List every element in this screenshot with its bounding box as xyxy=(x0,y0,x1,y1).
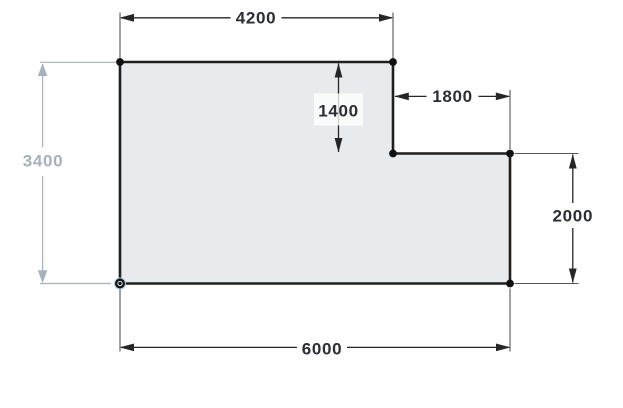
svg-text:1800: 1800 xyxy=(432,87,473,106)
svg-text:1400: 1400 xyxy=(318,102,359,121)
svg-text:4200: 4200 xyxy=(236,9,277,28)
svg-text:6000: 6000 xyxy=(302,340,343,359)
svg-text:2000: 2000 xyxy=(552,206,593,225)
svg-text:3400: 3400 xyxy=(23,152,64,171)
